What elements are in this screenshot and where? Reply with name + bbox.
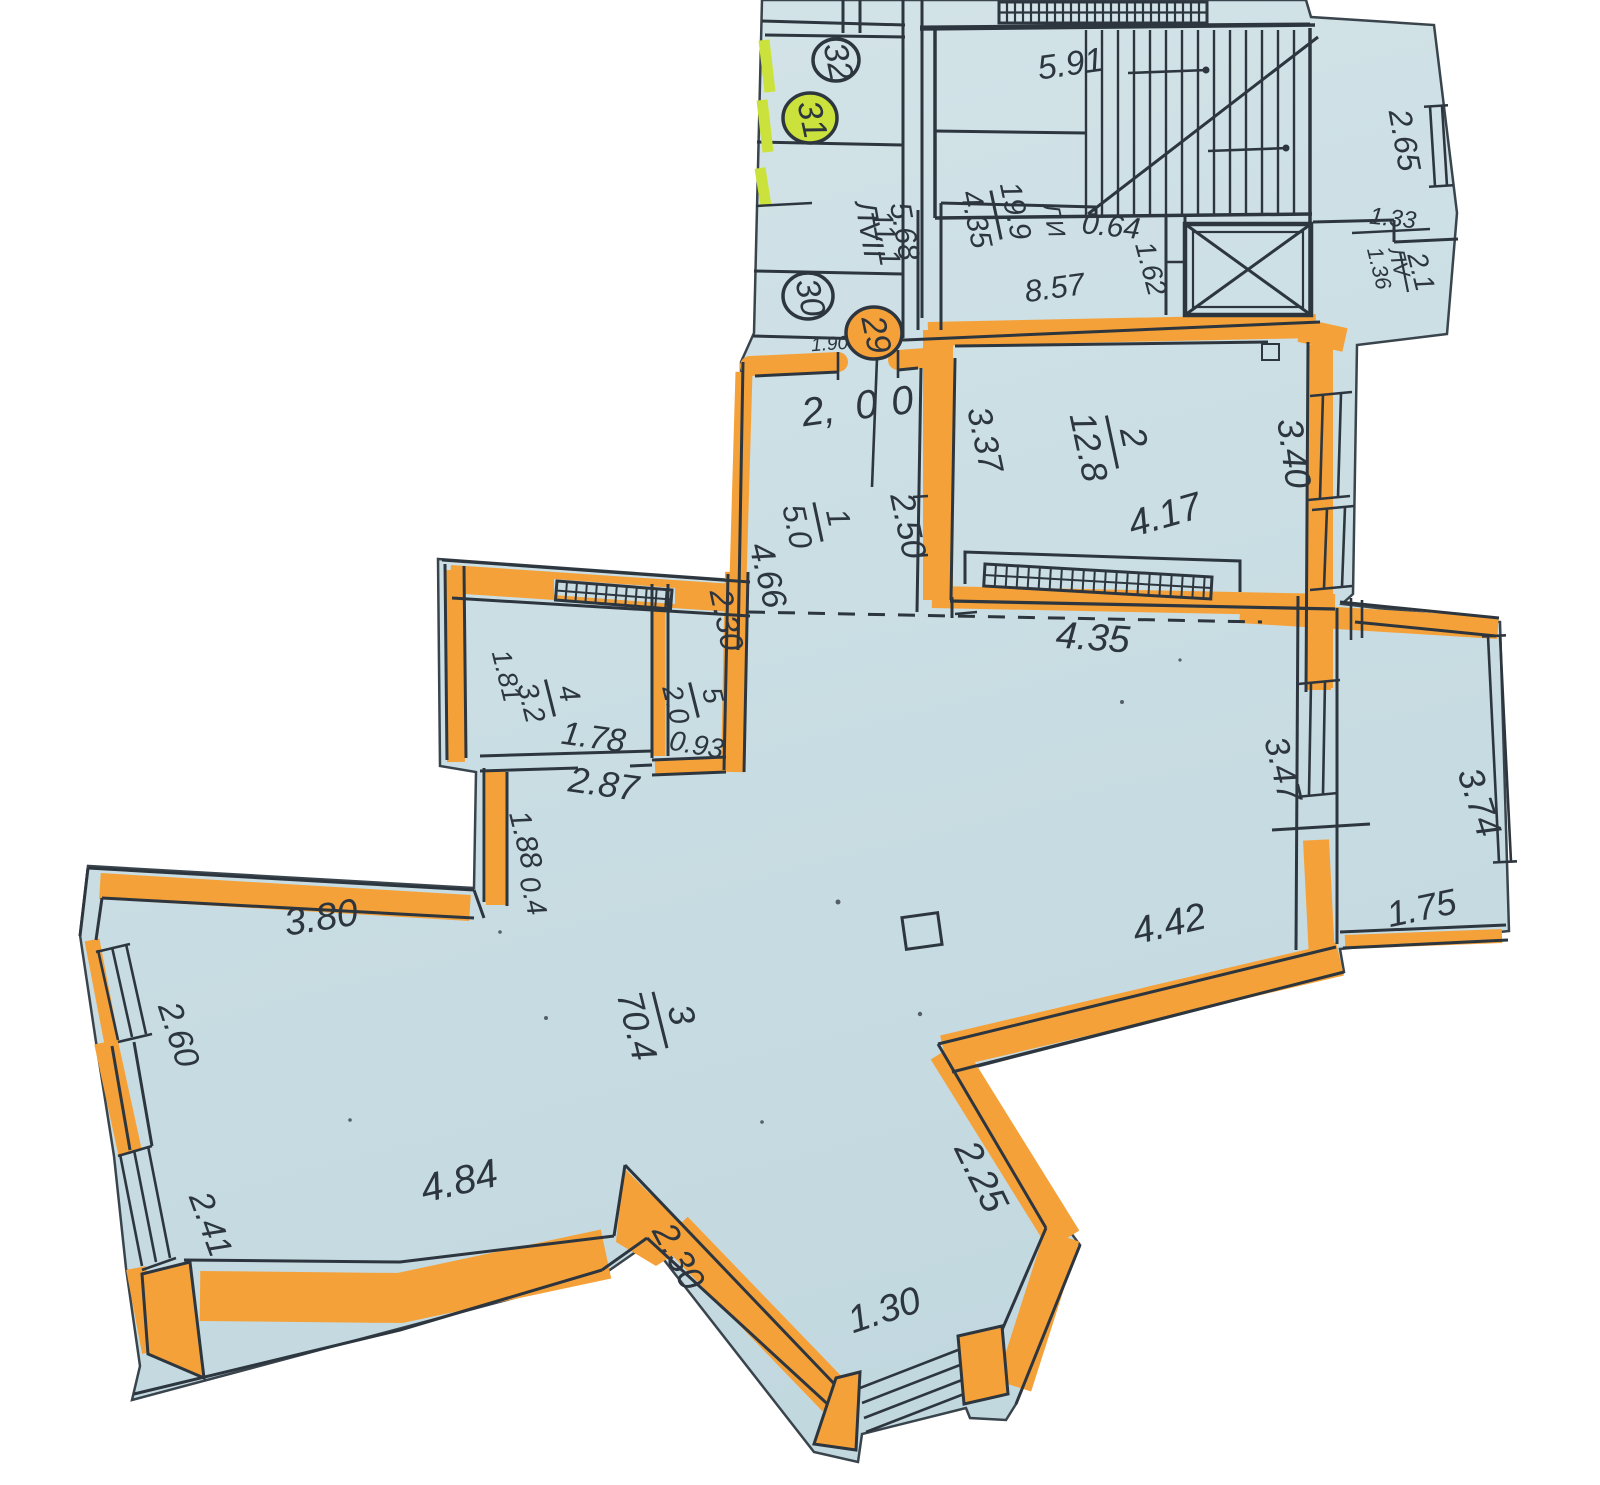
svg-text:1.90: 1.90 — [810, 333, 849, 357]
svg-text:4.35: 4.35 — [1054, 615, 1132, 662]
svg-text:32: 32 — [815, 39, 860, 84]
svg-text:29: 29 — [853, 311, 898, 357]
svg-text:31: 31 — [789, 97, 834, 142]
svg-text:0.64: 0.64 — [1080, 207, 1142, 246]
svg-text:2,: 2, — [798, 387, 838, 435]
svg-text:30: 30 — [787, 275, 832, 320]
svg-text:1.33: 1.33 — [1368, 203, 1418, 235]
